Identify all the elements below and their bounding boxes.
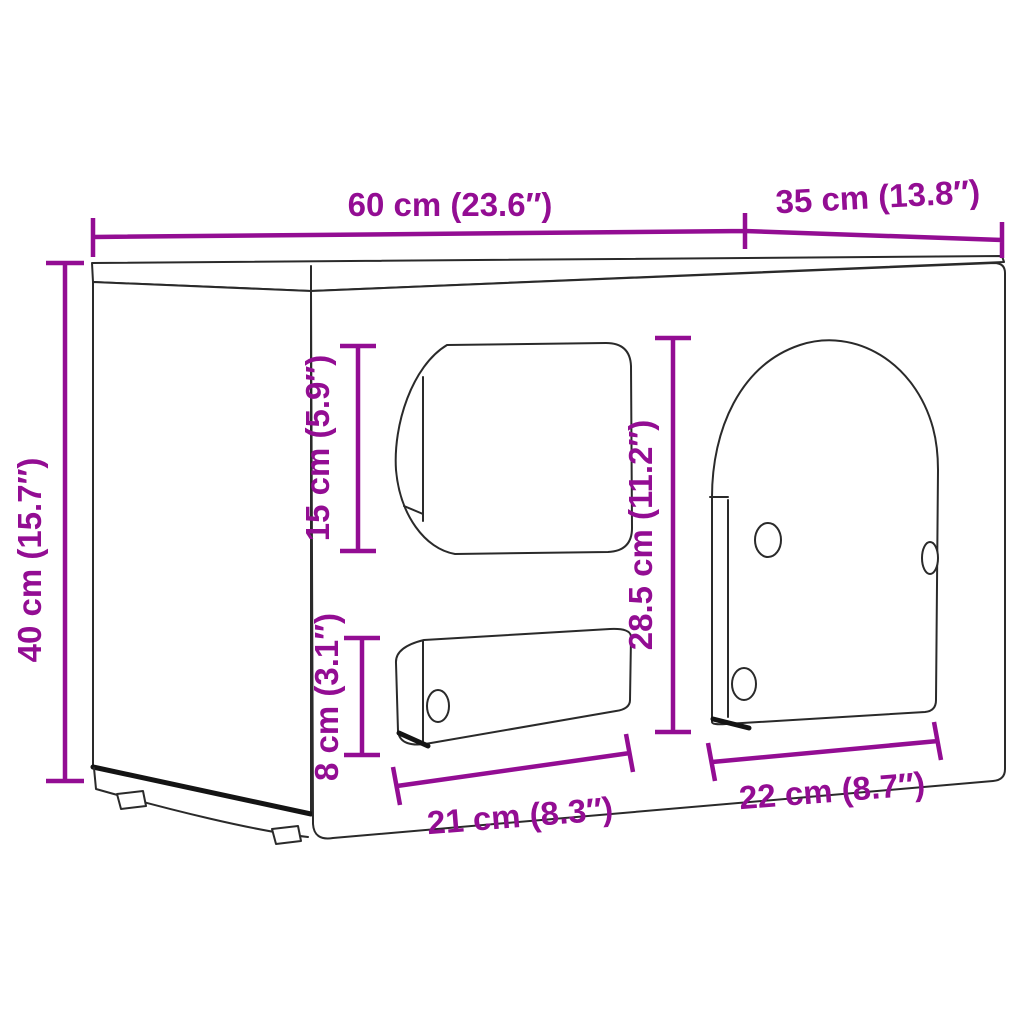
dimension-slot-height-label: 8 cm (3.1″) [308, 613, 345, 781]
dimension-depth: 35 cm (13.8″) [745, 173, 1002, 258]
cabinet-foot-front [272, 826, 301, 844]
cabinet-left-panel [93, 282, 311, 814]
dimension-line [46, 263, 84, 781]
dimension-height: 40 cm (15.7″) [11, 263, 84, 781]
diagram-canvas: 60 cm (23.6″) 35 cm (13.8″) 40 cm (15.7″… [0, 0, 1024, 1024]
dimension-width: 60 cm (23.6″) [93, 186, 745, 257]
product-dimension-diagram: 60 cm (23.6″) 35 cm (13.8″) 40 cm (15.7″… [0, 0, 1024, 1024]
cabinet-foot-left [117, 791, 146, 809]
top-opening [396, 343, 632, 554]
dimension-depth-label: 35 cm (13.8″) [775, 173, 981, 221]
arched-door [712, 340, 938, 724]
door-hole-right [922, 542, 938, 574]
door-hole-lower [732, 668, 756, 700]
dimension-height-label: 40 cm (15.7″) [11, 458, 48, 663]
cabinet [92, 256, 1005, 844]
dimension-width-label: 60 cm (23.6″) [348, 186, 553, 223]
dimension-door-height-label: 28.5 cm (11.2″) [622, 420, 659, 650]
door-hole-upper [755, 523, 781, 557]
dimension-top-opening-height-label: 15 cm (5.9″) [299, 355, 336, 541]
dimension-line [745, 222, 1002, 258]
slot-finger-hole [427, 690, 449, 722]
